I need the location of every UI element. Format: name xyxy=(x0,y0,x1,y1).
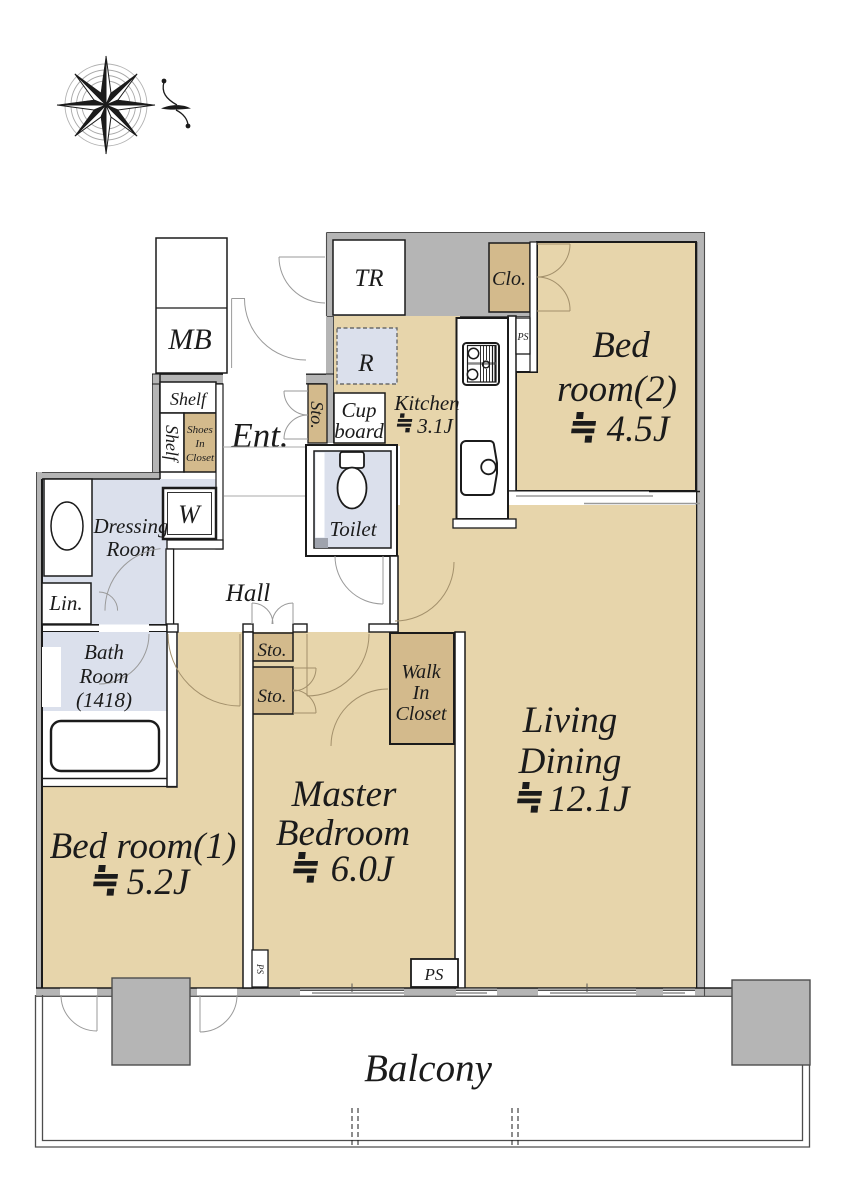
svg-text:6.0J: 6.0J xyxy=(331,849,395,890)
svg-text:Bed room(1): Bed room(1) xyxy=(50,826,237,867)
svg-text:Room: Room xyxy=(106,537,156,561)
svg-text:PS: PS xyxy=(255,963,265,974)
svg-text:Dressing: Dressing xyxy=(92,514,168,538)
svg-text:In: In xyxy=(412,682,430,704)
svg-text:room(2): room(2) xyxy=(557,369,677,410)
svg-text:12.1J: 12.1J xyxy=(548,779,631,820)
svg-text:Walk: Walk xyxy=(401,661,441,683)
svg-text:Dining: Dining xyxy=(518,741,622,782)
svg-text:TR: TR xyxy=(354,265,383,292)
svg-text:Sto.: Sto. xyxy=(307,401,327,429)
svg-text:Balcony: Balcony xyxy=(364,1047,492,1090)
svg-text:MB: MB xyxy=(167,323,211,356)
svg-text:Bedroom: Bedroom xyxy=(276,813,410,854)
svg-text:Shelf: Shelf xyxy=(162,425,182,464)
svg-text:PS: PS xyxy=(516,332,528,343)
svg-text:Closet: Closet xyxy=(186,452,215,464)
svg-text:Room: Room xyxy=(79,664,129,688)
svg-text:Sto.: Sto. xyxy=(257,640,286,661)
svg-text:Living: Living xyxy=(522,700,618,741)
svg-text:Lin.: Lin. xyxy=(48,591,82,615)
svg-text:Master: Master xyxy=(291,774,397,815)
svg-text:PS: PS xyxy=(424,965,444,984)
svg-text:4.5J: 4.5J xyxy=(607,409,671,450)
svg-text:Clo.: Clo. xyxy=(492,268,526,290)
svg-text:Hall: Hall xyxy=(225,580,271,607)
svg-text:(1418): (1418) xyxy=(76,688,132,712)
svg-text:In: In xyxy=(194,438,205,450)
svg-text:R: R xyxy=(357,350,373,377)
svg-text:Sto.: Sto. xyxy=(257,686,286,707)
svg-text:W: W xyxy=(178,500,202,529)
svg-text:Shoes: Shoes xyxy=(187,424,213,436)
svg-text:Closet: Closet xyxy=(395,703,447,725)
svg-text:Shelf: Shelf xyxy=(170,389,209,409)
svg-text:board: board xyxy=(334,419,384,443)
svg-text:Bed: Bed xyxy=(592,325,650,366)
svg-text:Toilet: Toilet xyxy=(329,517,377,541)
svg-text:Bath: Bath xyxy=(84,640,124,664)
svg-text:Ent.: Ent. xyxy=(230,416,288,455)
svg-text:5.2J: 5.2J xyxy=(127,862,191,903)
svg-text:Kitchen: Kitchen xyxy=(393,391,459,415)
svg-text:3.1J: 3.1J xyxy=(416,414,454,438)
